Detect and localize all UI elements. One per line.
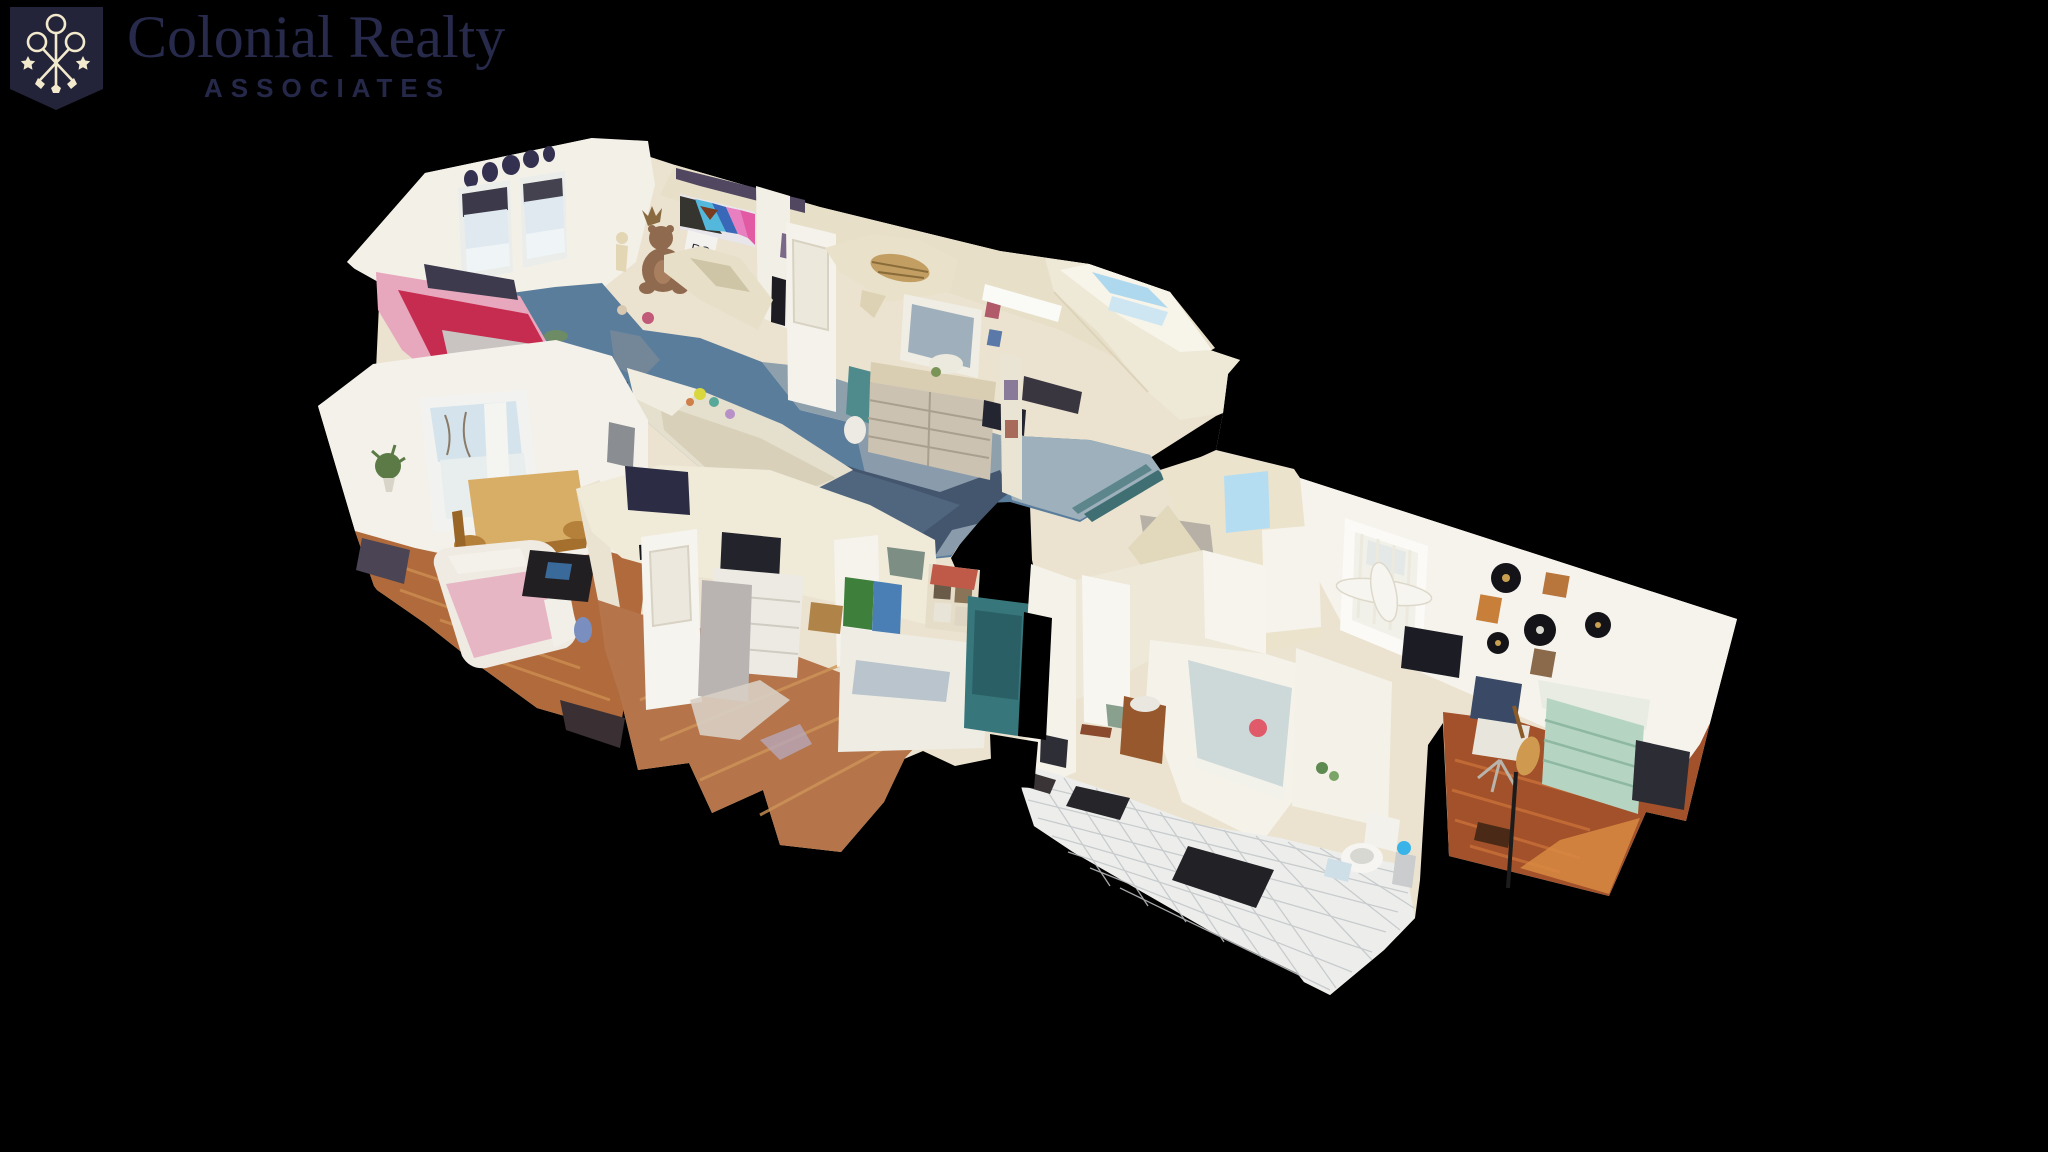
svg-text:ASSOCIATES: ASSOCIATES: [204, 73, 451, 103]
svg-text:Colonial Realty: Colonial Realty: [127, 4, 505, 70]
